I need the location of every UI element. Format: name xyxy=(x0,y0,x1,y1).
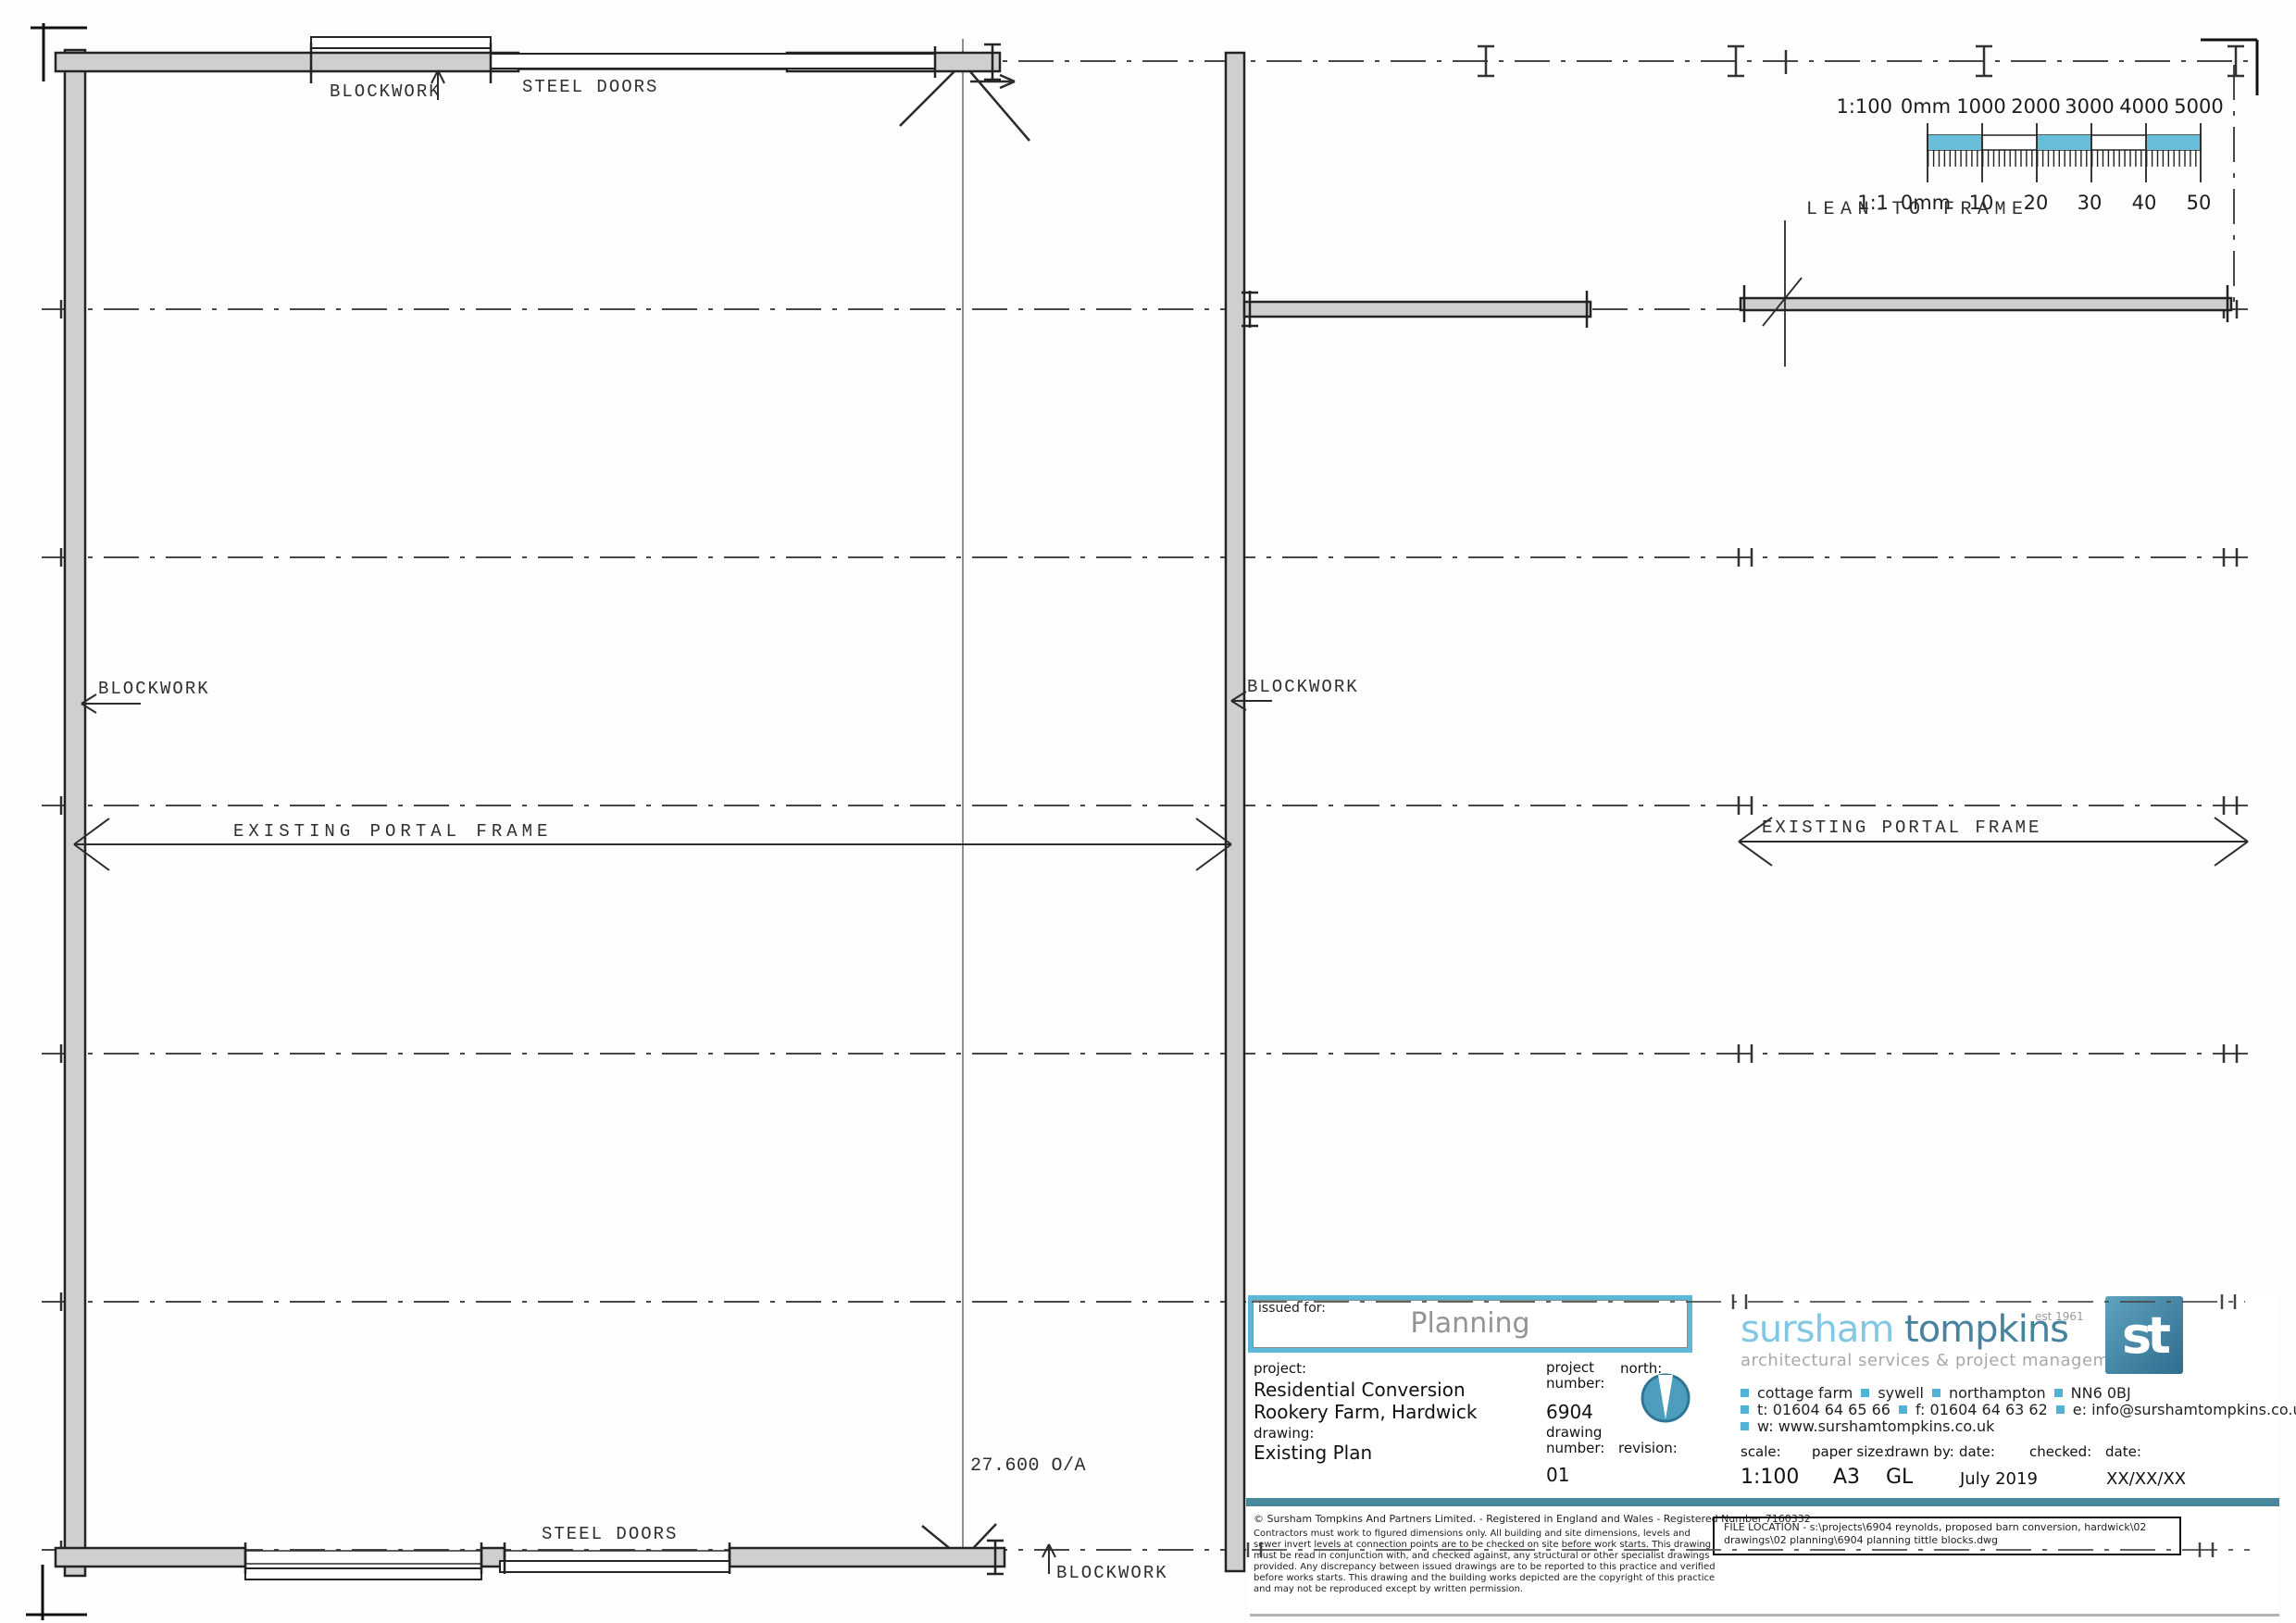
bullet-icon xyxy=(2054,1389,2063,1397)
scale-tick-40: 40 xyxy=(2132,192,2157,214)
label-steel-doors-bottom: STEEL DOORS xyxy=(542,1524,678,1544)
revision-label: revision: xyxy=(1618,1440,1678,1456)
label-blockwork-mid: BLOCKWORK xyxy=(1247,677,1359,697)
teal-divider-bar xyxy=(1246,1498,2279,1506)
label-blockwork-top: BLOCKWORK xyxy=(330,81,442,102)
website[interactable]: w: www.surshamtompkins.co.uk xyxy=(1757,1417,1994,1435)
issued-for-box: issued for: Planning xyxy=(1248,1295,1692,1353)
paper-size-value: A3 xyxy=(1833,1466,1860,1489)
date-value: July 2019 xyxy=(1960,1469,2038,1489)
project-name-line2: Rookery Farm, Hardwick xyxy=(1254,1401,1477,1423)
bullet-icon xyxy=(2056,1405,2065,1414)
scale-tick-0mm: 0mm xyxy=(1901,95,1951,118)
email[interactable]: e: info@surshamtompkins.co.uk xyxy=(2073,1401,2296,1418)
brand-monogram-logo: st xyxy=(2105,1296,2183,1374)
label-portal-frame-left: EXISTING PORTAL FRAME xyxy=(233,821,552,842)
scale-label: scale: xyxy=(1741,1443,1781,1460)
checked-label: checked: xyxy=(2029,1443,2091,1460)
drawing-number-label: drawing number: xyxy=(1546,1425,1618,1456)
scale-tick-4000: 4000 xyxy=(2119,95,2168,118)
title-block: issued for: Planning project: Residentia… xyxy=(1246,1290,2279,1623)
scale-value: 1:100 xyxy=(1741,1466,1799,1489)
drawing-number-value: 01 xyxy=(1546,1464,1569,1486)
bullet-icon xyxy=(1861,1389,1869,1397)
brand-name-sursham: sursham xyxy=(1741,1308,1893,1351)
scale-tick-5000: 5000 xyxy=(2174,95,2223,118)
date-label: date: xyxy=(1959,1443,1995,1460)
checked-date-value: XX/XX/XX xyxy=(2106,1469,2186,1489)
bullet-icon xyxy=(1741,1389,1749,1397)
door-openings xyxy=(245,56,787,1564)
lean-to-marks xyxy=(1763,220,1802,367)
label-steel-doors-top: STEEL DOORS xyxy=(522,77,658,97)
paper-size-label: paper size: xyxy=(1812,1443,1889,1460)
scale-tick-50: 50 xyxy=(2187,192,2212,214)
scale-tick-2000: 2000 xyxy=(2011,95,2060,118)
address-town: sywell xyxy=(1878,1384,1924,1402)
brand-tagline: architectural services & project managem… xyxy=(1741,1351,2139,1370)
address-row: cottage farm sywell northampton NN6 0BJ xyxy=(1741,1384,2131,1402)
scale-tick-1000: 1000 xyxy=(1956,95,2005,118)
project-name-line1: Residential Conversion xyxy=(1254,1379,1466,1401)
label-blockwork-left: BLOCKWORK xyxy=(98,679,210,699)
north-compass-icon xyxy=(1641,1373,1691,1423)
project-number-value: 6904 xyxy=(1546,1401,1593,1423)
drawing-label: drawing: xyxy=(1254,1425,1314,1442)
scale-bar: 1:100 0mm 1000 2000 3000 4000 5000 1:1 0… xyxy=(1836,95,2223,214)
scale-tick-30: 30 xyxy=(2078,192,2103,214)
steel-door-leaves xyxy=(245,37,935,1579)
scale-ratio-1-100: 1:100 xyxy=(1836,95,1892,118)
label-lean-to-frame: LEAN-TO FRAME xyxy=(1806,199,2029,220)
brand-est-1961: est 1961 xyxy=(2035,1310,2084,1323)
fax: f: 01604 64 63 62 xyxy=(1915,1401,2048,1418)
bullet-icon xyxy=(1741,1405,1749,1414)
bullet-icon xyxy=(1932,1389,1940,1397)
phone-row: t: 01604 64 65 66 f: 01604 64 63 62 e: i… xyxy=(1741,1401,2296,1418)
bullet-icon xyxy=(1741,1422,1749,1430)
drawn-by-label: drawn by: xyxy=(1886,1443,1954,1460)
disclaimer-text: Contractors must work to figured dimensi… xyxy=(1254,1529,1716,1595)
project-number-label: project number: xyxy=(1546,1360,1618,1392)
address-city: northampton xyxy=(1949,1384,2046,1402)
label-portal-frame-right: EXISTING PORTAL FRAME xyxy=(1762,818,2041,838)
brand-logotype: sursham tompkins xyxy=(1741,1308,2068,1351)
label-overall-dimension: 27.600 O/A xyxy=(970,1455,1086,1477)
drawn-by-value: GL xyxy=(1886,1466,1913,1489)
drawing-title: Existing Plan xyxy=(1254,1442,1372,1464)
issued-for-label: issued for: xyxy=(1258,1301,1326,1316)
file-location-box: FILE LOCATION - s:\projects\6904 reynold… xyxy=(1713,1517,2181,1555)
bullet-icon xyxy=(1899,1405,1907,1414)
label-blockwork-bottom: BLOCKWORK xyxy=(1056,1563,1168,1583)
project-label: project: xyxy=(1254,1360,1306,1377)
scale-tick-3000: 3000 xyxy=(2065,95,2114,118)
centre-line-chevrons xyxy=(900,63,1029,1559)
address-postcode: NN6 0BJ xyxy=(2071,1384,2131,1402)
drawing-sheet: 1:100 0mm 1000 2000 3000 4000 5000 1:1 0… xyxy=(0,0,2296,1623)
checked-date-label: date: xyxy=(2105,1443,2141,1460)
telephone: t: 01604 64 65 66 xyxy=(1757,1401,1890,1418)
address-farm: cottage farm xyxy=(1757,1384,1853,1402)
web-row: w: www.surshamtompkins.co.uk xyxy=(1741,1417,1994,1435)
scan-edge-line xyxy=(1250,1614,2279,1617)
